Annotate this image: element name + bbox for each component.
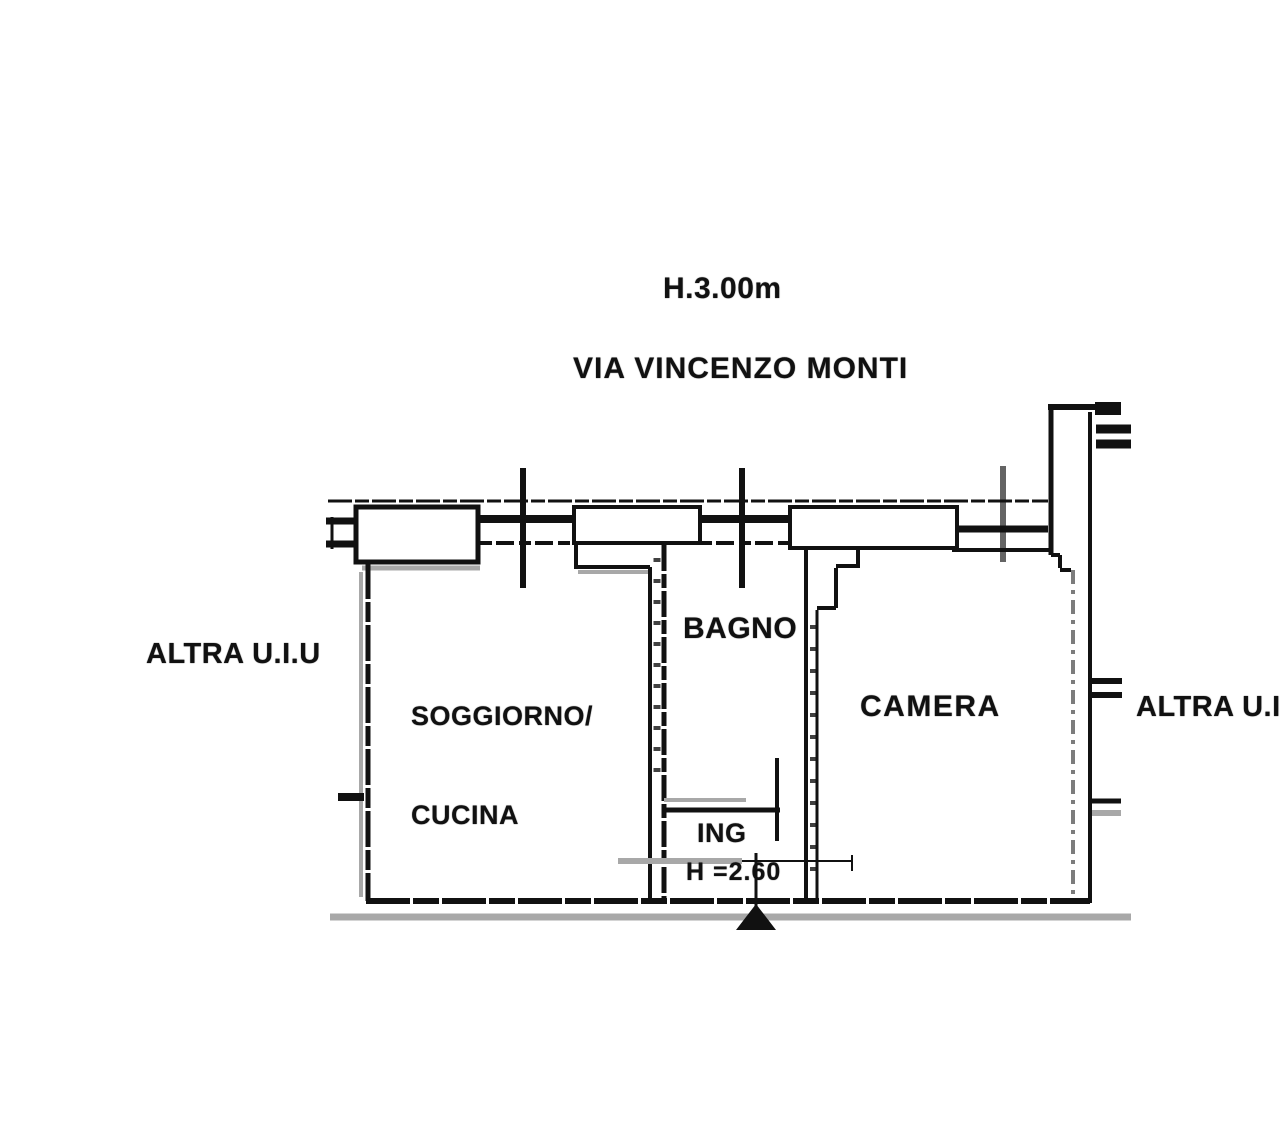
room-label-camera: CAMERA bbox=[860, 690, 1001, 724]
ingresso-height-note: H =2.60 bbox=[686, 858, 781, 887]
room-label-soggiorno-cucina: SOGGIORNO/ CUCINA bbox=[411, 634, 593, 898]
facade-windows bbox=[480, 466, 1053, 588]
floor-plan-page: H.3.00m VIA VINCENZO MONTI ALTRA U.I.U S… bbox=[0, 0, 1280, 1148]
room-label-soggiorno-line2: CUCINA bbox=[411, 799, 593, 832]
room-label-soggiorno-line1: SOGGIORNO/ bbox=[411, 700, 593, 733]
adjacent-unit-left-label: ALTRA U.I.U bbox=[146, 638, 321, 671]
room-label-bagno: BAGNO bbox=[683, 612, 797, 646]
ceiling-height-note: H.3.00m bbox=[663, 272, 782, 306]
street-name-label: VIA VINCENZO MONTI bbox=[573, 352, 908, 386]
left-boundary-wall bbox=[338, 563, 368, 901]
wall-bagno-camera bbox=[806, 546, 858, 901]
room-label-ingresso: ING bbox=[697, 818, 747, 849]
bottom-wall bbox=[330, 901, 1131, 917]
right-boundary-wall bbox=[1073, 412, 1122, 903]
adjacent-unit-right-label: ALTRA U.I. bbox=[1136, 691, 1280, 724]
floor-plan-drawing bbox=[0, 0, 1280, 1148]
